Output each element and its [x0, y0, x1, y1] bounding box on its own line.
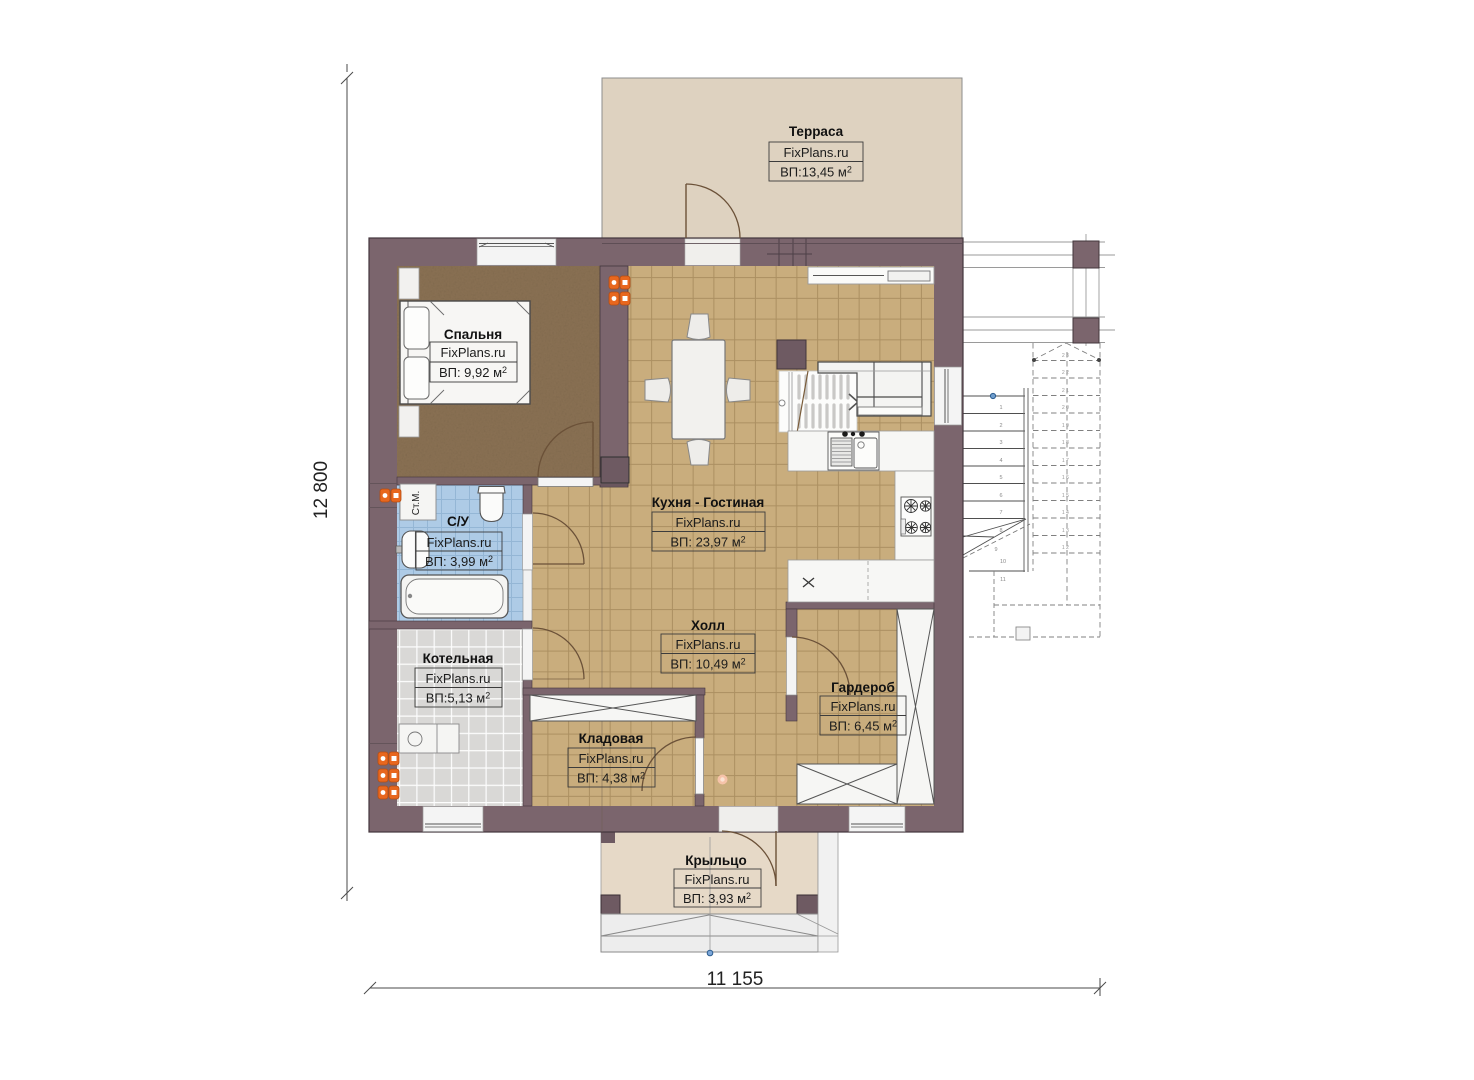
svg-text:10: 10 — [1000, 559, 1006, 565]
svg-text:ВП: 6,45 м2: ВП: 6,45 м2 — [829, 719, 897, 734]
svg-text:FixPlans.ru: FixPlans.ru — [425, 671, 490, 686]
svg-text:ВП: 10,49 м2: ВП: 10,49 м2 — [670, 657, 745, 672]
svg-text:Крыльцо: Крыльцо — [685, 853, 746, 868]
svg-text:20: 20 — [1062, 405, 1070, 411]
svg-text:FixPlans.ru: FixPlans.ru — [578, 751, 643, 766]
svg-text:13: 13 — [1062, 528, 1070, 534]
svg-text:ВП: 4,38 м2: ВП: 4,38 м2 — [577, 771, 645, 786]
svg-text:ВП: 9,92 м2: ВП: 9,92 м2 — [439, 365, 507, 380]
svg-text:22: 22 — [1062, 370, 1070, 376]
svg-text:FixPlans.ru: FixPlans.ru — [426, 535, 491, 550]
svg-text:FixPlans.ru: FixPlans.ru — [783, 145, 848, 160]
svg-text:16: 16 — [1062, 475, 1070, 481]
svg-text:FixPlans.ru: FixPlans.ru — [684, 872, 749, 887]
svg-text:12: 12 — [1062, 545, 1070, 551]
svg-text:2: 2 — [999, 423, 1002, 429]
svg-text:Кухня - Гостиная: Кухня - Гостиная — [652, 495, 764, 510]
svg-text:14: 14 — [1062, 510, 1070, 516]
svg-text:Кладовая: Кладовая — [579, 731, 644, 746]
svg-text:23: 23 — [1062, 353, 1070, 359]
svg-text:ВП: 3,93 м2: ВП: 3,93 м2 — [683, 891, 751, 906]
svg-text:ВП:13,45 м2: ВП:13,45 м2 — [780, 165, 852, 180]
svg-text:15: 15 — [1062, 493, 1070, 499]
svg-text:Спальня: Спальня — [444, 327, 502, 342]
svg-text:11 155: 11 155 — [707, 969, 764, 990]
svg-text:FixPlans.ru: FixPlans.ru — [830, 699, 895, 714]
svg-text:Ст.М.: Ст.М. — [411, 491, 422, 516]
svg-text:19: 19 — [1062, 423, 1070, 429]
svg-text:С/У: С/У — [447, 514, 470, 529]
svg-text:21: 21 — [1062, 388, 1070, 394]
svg-text:Гардероб: Гардероб — [831, 680, 895, 695]
svg-text:3: 3 — [999, 440, 1002, 446]
svg-text:6: 6 — [999, 493, 1002, 499]
svg-text:Котельная: Котельная — [423, 651, 494, 666]
svg-text:4: 4 — [999, 458, 1002, 464]
svg-text:12 800: 12 800 — [311, 461, 332, 519]
svg-text:ВП:5,13 м2: ВП:5,13 м2 — [426, 691, 491, 706]
svg-text:FixPlans.ru: FixPlans.ru — [675, 515, 740, 530]
svg-text:1: 1 — [999, 405, 1002, 411]
svg-text:17: 17 — [1062, 458, 1070, 464]
svg-text:11: 11 — [1000, 577, 1006, 583]
svg-text:ВП: 3,99 м2: ВП: 3,99 м2 — [425, 554, 493, 569]
svg-text:Холл: Холл — [691, 618, 725, 633]
svg-text:7: 7 — [999, 510, 1002, 516]
svg-text:FixPlans.ru: FixPlans.ru — [440, 345, 505, 360]
svg-text:5: 5 — [999, 475, 1002, 481]
svg-text:9: 9 — [994, 547, 997, 553]
svg-text:18: 18 — [1062, 440, 1070, 446]
svg-text:8: 8 — [999, 528, 1002, 534]
svg-text:Терраса: Терраса — [789, 124, 844, 139]
svg-text:ВП: 23,97 м2: ВП: 23,97 м2 — [670, 535, 745, 550]
svg-text:FixPlans.ru: FixPlans.ru — [675, 637, 740, 652]
